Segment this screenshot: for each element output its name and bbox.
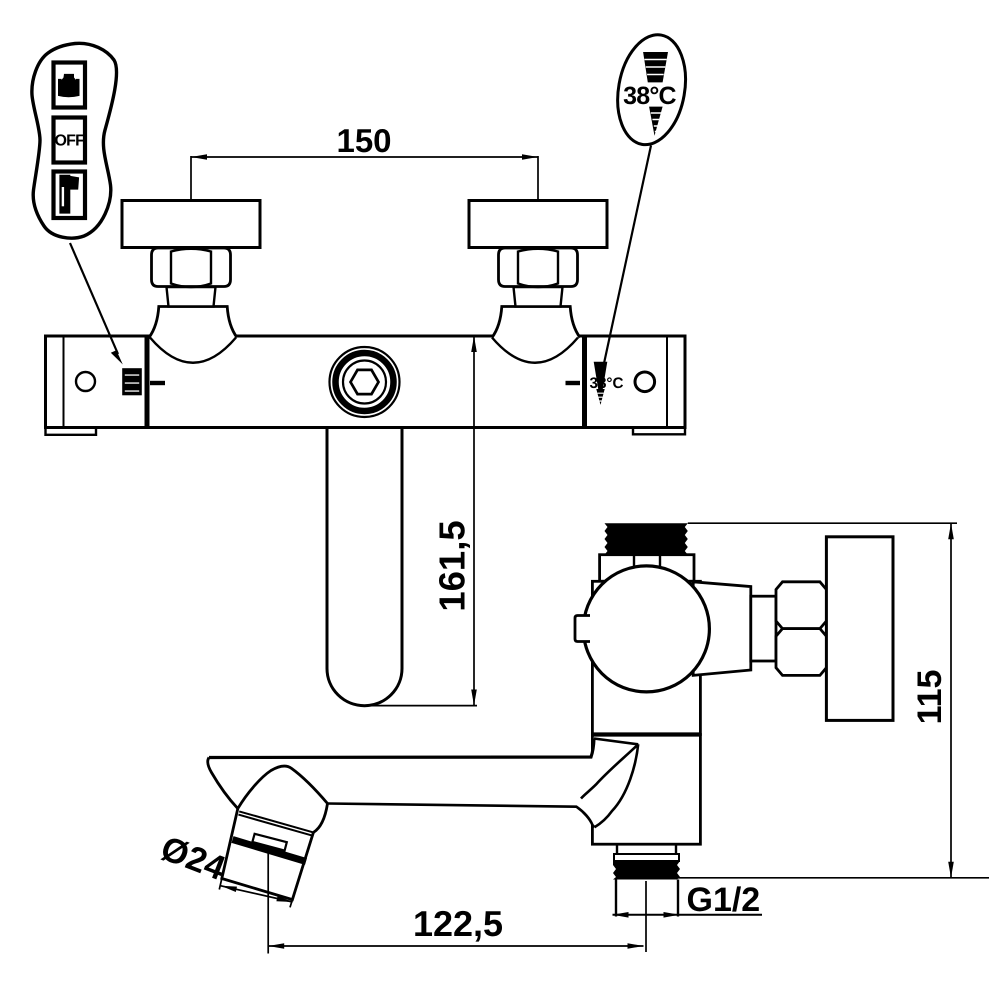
- svg-text:122,5: 122,5: [413, 903, 503, 944]
- svg-text:G1/2: G1/2: [686, 881, 760, 919]
- svg-text:OFF: OFF: [55, 132, 86, 149]
- svg-text:38°C: 38°C: [589, 375, 623, 392]
- svg-text:38°C: 38°C: [623, 82, 676, 110]
- svg-text:150: 150: [336, 122, 391, 159]
- svg-text:115: 115: [911, 670, 949, 725]
- svg-text:161,5: 161,5: [432, 520, 473, 611]
